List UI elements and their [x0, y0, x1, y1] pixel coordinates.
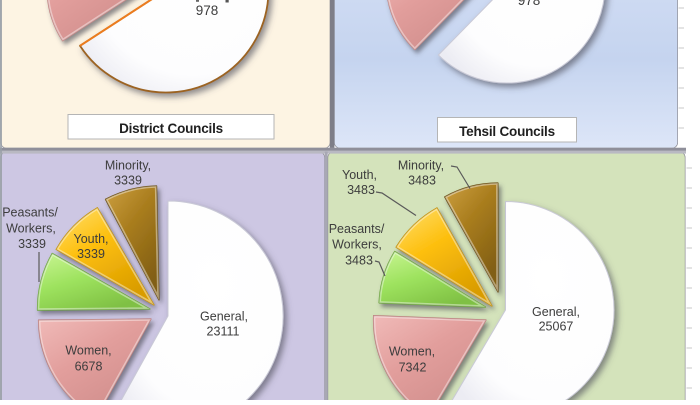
svg-text:3483: 3483 [408, 174, 436, 188]
svg-text:3483: 3483 [347, 183, 375, 197]
svg-text:Workers,: Workers, [6, 222, 56, 236]
svg-text:25067: 25067 [539, 320, 574, 334]
svg-text:General,: General, [200, 310, 248, 324]
svg-text:Youth,: Youth, [342, 168, 377, 182]
svg-text:3339: 3339 [114, 174, 142, 188]
svg-text:3483: 3483 [345, 254, 373, 268]
svg-text:Minority,: Minority, [105, 159, 151, 173]
svg-text:7342: 7342 [399, 361, 427, 375]
svg-text:Peasants/: Peasants/ [329, 222, 385, 236]
svg-text:Minority,: Minority, [398, 159, 444, 173]
svg-text:978: 978 [196, 3, 219, 18]
svg-text:Youth,: Youth, [74, 232, 109, 246]
svg-text:Tehsil Councils: Tehsil Councils [459, 124, 555, 139]
svg-text:978: 978 [518, 0, 541, 8]
svg-text:23111: 23111 [207, 325, 240, 339]
svg-text:3339: 3339 [77, 247, 105, 261]
svg-text:Workers,: Workers, [332, 238, 382, 252]
svg-text:General,: General, [532, 305, 580, 319]
svg-text:Peasants/: Peasants/ [2, 206, 58, 220]
svg-text:3339: 3339 [18, 237, 46, 251]
svg-text:District Councils: District Councils [119, 121, 223, 136]
svg-text:Women,: Women, [389, 345, 435, 359]
svg-text:6678: 6678 [75, 360, 103, 374]
svg-text:Women,: Women, [65, 344, 111, 358]
